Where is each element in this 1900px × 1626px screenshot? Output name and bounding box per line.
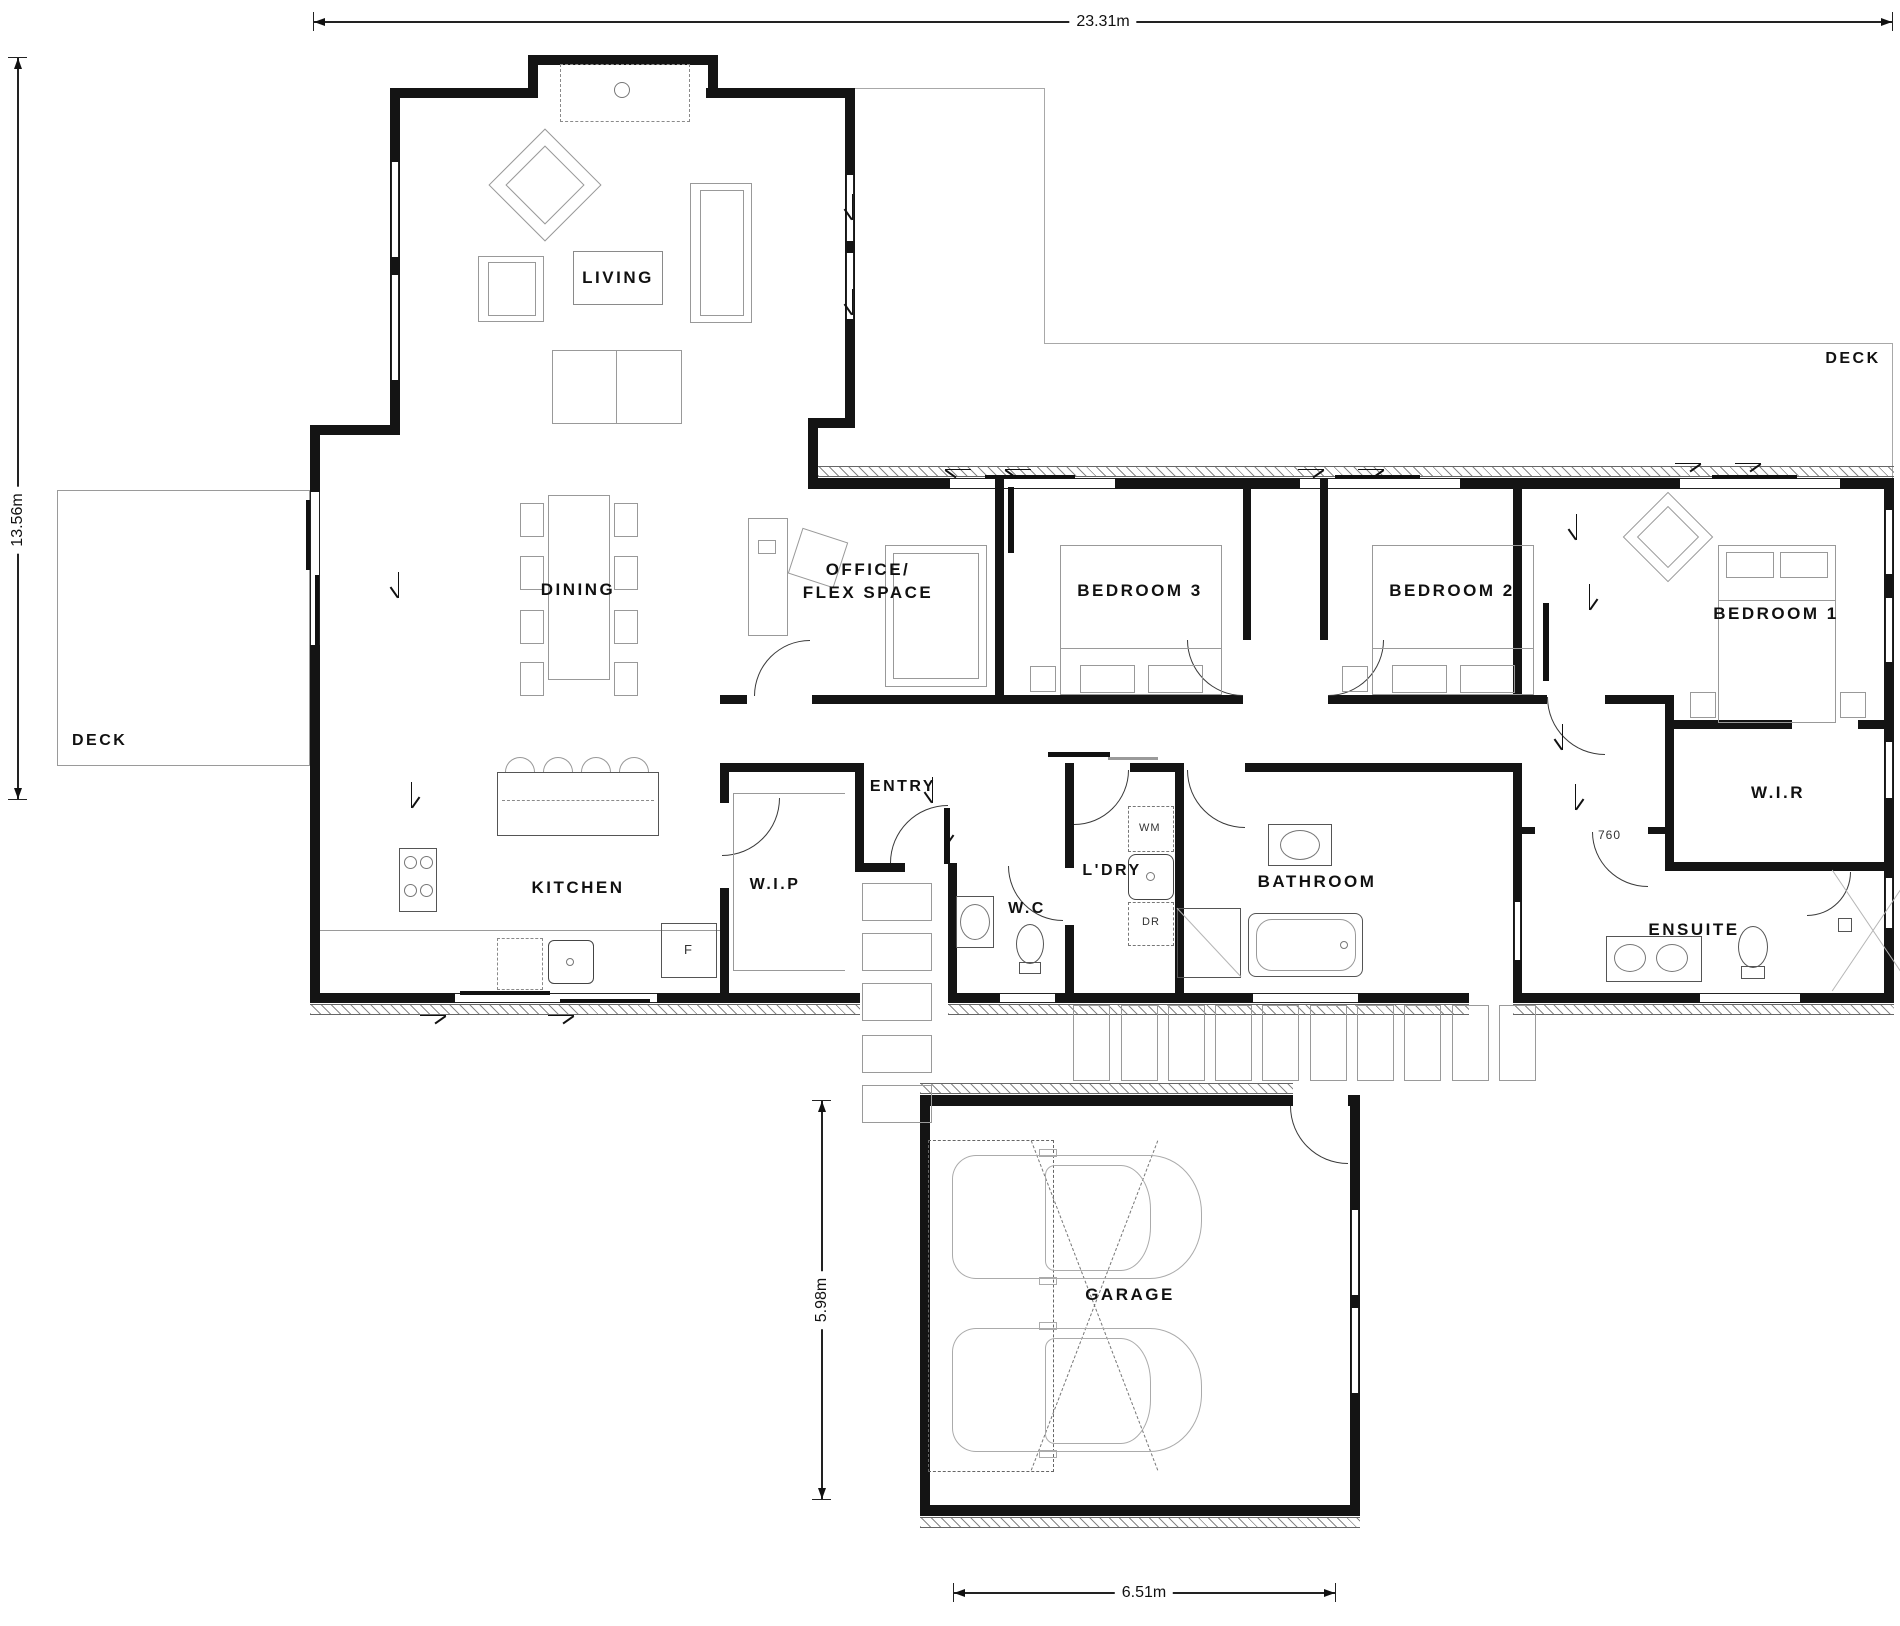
dim-overall-height: 13.56m — [9, 486, 27, 553]
coffee-table — [552, 350, 682, 424]
paver-tile — [1121, 1005, 1158, 1081]
dining-chair — [614, 503, 638, 537]
wall — [855, 863, 905, 872]
living-label: LIVING — [582, 268, 654, 288]
car-mirror — [1039, 1450, 1057, 1458]
paver-tile — [1452, 1005, 1489, 1081]
door-leaf — [1008, 487, 1014, 553]
dining-chair — [614, 662, 638, 696]
window-swing-mark — [1675, 450, 1701, 464]
dishwasher-dashed — [497, 938, 543, 990]
kitchen-island — [497, 772, 659, 836]
dining-chair — [614, 556, 638, 590]
deck-right-label: DECK — [1825, 350, 1880, 368]
dining-chair — [520, 610, 544, 644]
deck-right-outline — [1044, 88, 1045, 344]
sofa-cushion — [700, 190, 744, 316]
window-swing-mark — [1735, 450, 1761, 464]
slider-leaf — [460, 991, 550, 995]
wall-hatch — [310, 1004, 860, 1015]
shower-rose — [1838, 918, 1852, 932]
robe-slider-leaf — [1543, 603, 1549, 681]
pillow — [1460, 665, 1515, 693]
ensuite-door-arc — [1592, 832, 1648, 887]
window-swing-mark — [852, 289, 866, 315]
bed1-door-arc — [1547, 697, 1605, 755]
bar-stool — [581, 757, 611, 772]
car-mirror — [1039, 1322, 1057, 1330]
window-swing-mark — [1005, 456, 1031, 470]
car — [952, 1155, 1202, 1279]
dining-chair — [614, 610, 638, 644]
paver-tile — [1499, 1005, 1536, 1081]
window-swing-mark — [1576, 514, 1590, 540]
paver-tile — [1168, 1005, 1205, 1081]
living-label-box: LIVING — [573, 251, 663, 305]
hall-slider-leaf — [1048, 752, 1110, 757]
window — [391, 162, 399, 257]
pillow — [1392, 665, 1447, 693]
blanket-line — [1061, 648, 1221, 649]
kitchen-label: KITCHEN — [531, 878, 624, 898]
bar-stool — [543, 757, 573, 772]
window-swing-mark — [852, 194, 866, 220]
wc-label: W.C — [1008, 900, 1046, 918]
office-desk — [748, 518, 788, 636]
deck-right-outline — [1044, 343, 1893, 344]
window-swing-mark — [1562, 724, 1576, 750]
pillow — [1726, 552, 1774, 578]
window — [1000, 993, 1055, 1003]
window — [1253, 993, 1358, 1003]
door-swing-mark — [932, 820, 946, 846]
blanket-line — [1719, 600, 1835, 601]
window-swing-mark — [1298, 456, 1324, 470]
deck-left-outline — [57, 490, 310, 766]
island-dashed-line — [502, 800, 654, 801]
wall — [720, 763, 729, 803]
wall — [1605, 695, 1665, 704]
slider-leaf — [306, 500, 310, 570]
window-sash — [1712, 475, 1797, 479]
car-mirror — [1039, 1149, 1057, 1157]
paver-tile — [1215, 1005, 1252, 1081]
window — [1885, 510, 1893, 574]
wir-label: W.I.R — [1751, 783, 1805, 803]
bath-drain — [1340, 941, 1348, 949]
garage-label: GARAGE — [1085, 1285, 1175, 1305]
basin — [1280, 830, 1320, 860]
wall — [1065, 925, 1074, 1002]
pillow — [1080, 665, 1135, 693]
coffee-table-line — [616, 351, 617, 423]
car-mirror — [1039, 1277, 1057, 1285]
window-swing-mark — [1562, 784, 1576, 810]
dim-arrow — [14, 788, 22, 799]
wall — [1513, 827, 1535, 834]
blanket-line — [1373, 648, 1533, 649]
armchair-cushion — [488, 262, 536, 316]
pillow — [1148, 665, 1203, 693]
paver-tile — [862, 1035, 932, 1073]
bed1-label: BEDROOM 1 — [1713, 604, 1838, 624]
wall — [528, 55, 538, 98]
window-swing-mark — [548, 1002, 574, 1016]
entry-label: ENTRY — [870, 778, 936, 796]
window — [1885, 742, 1893, 798]
wall — [920, 1095, 1293, 1106]
wall — [1328, 695, 1547, 704]
dim-tick — [8, 799, 27, 800]
window — [391, 275, 399, 380]
car — [952, 1328, 1202, 1452]
cooktop-burner — [404, 856, 417, 869]
wall — [708, 55, 718, 98]
paver-tile — [1262, 1005, 1299, 1081]
wall — [1665, 862, 1894, 871]
dim-arrow — [1324, 1589, 1335, 1597]
wall — [706, 88, 854, 98]
car-cabin — [1045, 1165, 1151, 1272]
wall — [995, 478, 1004, 695]
laundry-door-arc — [1074, 770, 1129, 825]
window — [950, 478, 1115, 489]
window — [1514, 902, 1521, 960]
paver-tile — [862, 983, 932, 1021]
wall — [720, 763, 864, 772]
dim-arrow — [818, 1488, 826, 1499]
window-sash — [1335, 475, 1420, 479]
wall — [390, 88, 400, 435]
window-swing-mark — [1576, 584, 1590, 610]
cooktop-burner — [420, 856, 433, 869]
wall — [1858, 720, 1894, 729]
window — [1351, 1210, 1359, 1295]
wall — [1648, 827, 1665, 834]
cooktop-burner — [404, 884, 417, 897]
basin — [1614, 944, 1646, 972]
office-label: OFFICE/ FLEX SPACE — [803, 558, 933, 604]
dryer-label: DR — [1142, 916, 1160, 928]
wall — [1065, 763, 1074, 868]
wall — [812, 695, 1243, 704]
dining-chair — [520, 503, 544, 537]
basin — [960, 904, 990, 940]
cooktop-burner — [420, 884, 433, 897]
window — [1680, 478, 1840, 489]
washing-machine-label: WM — [1139, 822, 1161, 834]
tub-drain — [1146, 872, 1155, 881]
paver-tile — [862, 1085, 932, 1123]
dim-overall-width: 23.31m — [1069, 13, 1136, 31]
paver-tile — [1310, 1005, 1347, 1081]
window — [1700, 993, 1800, 1003]
garage-door-arc — [1290, 1106, 1348, 1164]
paver-tile — [862, 933, 932, 971]
pillow — [1780, 552, 1828, 578]
bedside-table — [1840, 692, 1866, 718]
window — [1351, 1308, 1359, 1393]
wall — [1513, 763, 1522, 1002]
fireplace-flue — [614, 82, 630, 98]
paver-tile — [1404, 1005, 1441, 1081]
wall — [1243, 478, 1251, 640]
deck-right-outline — [853, 88, 1045, 89]
wall — [920, 1505, 1360, 1516]
bathroom-label: BATHROOM — [1258, 872, 1377, 892]
wall-hatch — [1513, 1004, 1894, 1015]
dim-tick — [812, 1499, 831, 1500]
shower-door-arc — [1807, 872, 1851, 916]
office-door-arc — [754, 640, 810, 696]
floor-plan: 23.31m 13.56m 5.98m 6.51m 760 DECK DECK — [0, 0, 1900, 1626]
dim-arrow — [314, 18, 325, 26]
window-swing-mark — [420, 1002, 446, 1016]
dining-chair — [520, 662, 544, 696]
paver-tile — [1073, 1005, 1110, 1081]
bar-stool — [505, 757, 535, 772]
pantry-label: W.I.P — [750, 876, 801, 894]
wall — [1245, 763, 1513, 772]
wall — [720, 695, 747, 704]
dim-arrow — [1881, 18, 1892, 26]
dim-arrow — [14, 58, 22, 69]
wall — [1320, 478, 1328, 640]
window-swing-mark — [398, 782, 412, 808]
wall — [390, 88, 532, 98]
toilet-bowl — [1016, 924, 1044, 964]
bar-stool — [619, 757, 649, 772]
wall-hatch — [920, 1083, 1293, 1094]
bedside-table — [1030, 666, 1056, 692]
hall-slider-track — [1108, 757, 1158, 760]
dim-arrow — [818, 1101, 826, 1112]
deck-left-label: DECK — [72, 732, 127, 750]
dim-garage-width: 6.51m — [1115, 1584, 1173, 1602]
dim-tick — [1892, 12, 1893, 31]
office-label-line1: OFFICE/ — [826, 560, 911, 579]
kitchen-counter-line — [320, 930, 720, 931]
wall — [720, 888, 729, 1003]
toilet-tank — [1019, 962, 1041, 974]
deck-right-outline — [1892, 343, 1893, 479]
wall — [310, 425, 400, 435]
bedside-table — [1690, 692, 1716, 718]
dining-label: DINING — [541, 580, 616, 600]
dim-line-left — [17, 57, 19, 800]
basin — [1656, 944, 1688, 972]
wall-hatch — [920, 1517, 1360, 1528]
window-swing-mark — [398, 572, 412, 598]
paver-tile — [1357, 1005, 1394, 1081]
toilet-tank — [1741, 966, 1765, 979]
window — [1885, 598, 1893, 662]
office-label-line2: FLEX SPACE — [803, 583, 933, 602]
sink-drain — [566, 958, 574, 966]
paver-tile — [862, 883, 932, 921]
bed3-label: BEDROOM 3 — [1077, 581, 1202, 601]
wall — [1350, 1095, 1360, 1516]
fridge-label: F — [684, 942, 693, 957]
bed2-label: BEDROOM 2 — [1389, 581, 1514, 601]
car-cabin — [1045, 1338, 1151, 1445]
dim-arrow — [954, 1589, 965, 1597]
window-swing-mark — [945, 456, 971, 470]
bedside-table — [1342, 666, 1368, 692]
toilet-bowl — [1738, 926, 1768, 968]
window-swing-mark — [1358, 456, 1384, 470]
wall — [1130, 763, 1180, 772]
dim-tick — [1335, 1583, 1336, 1602]
slider-leaf — [315, 575, 319, 645]
bathroom-door-arc — [1187, 770, 1245, 828]
office-monitor — [758, 540, 776, 554]
wall — [855, 763, 864, 871]
dim-garage-depth: 5.98m — [813, 1271, 831, 1329]
